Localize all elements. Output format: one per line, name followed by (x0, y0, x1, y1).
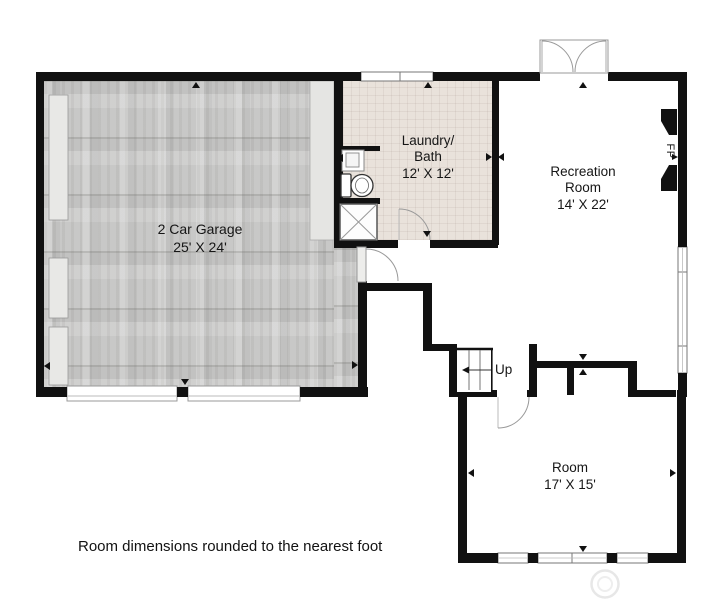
marker-garage-top (192, 82, 200, 88)
watermark-logo (592, 571, 619, 598)
room-dimensions: 17' X 15' (520, 476, 620, 493)
recreation-label: Recreation Room 14' X 22' (533, 164, 633, 213)
recreation-name-line2: Room (533, 180, 633, 196)
marker-room-left (468, 469, 474, 477)
marker-room-right (670, 469, 676, 477)
laundry-name-line2: Bath (378, 149, 478, 165)
sink-basin (346, 153, 359, 167)
laundry-name-line1: Laundry/ (378, 133, 478, 149)
marker-garage-bottom (181, 379, 189, 385)
laundry-window-2 (400, 72, 433, 81)
room-label: Room 17' X 15' (520, 459, 620, 493)
garage-left-shelf-3 (49, 327, 68, 385)
footer-note: Room dimensions rounded to the nearest f… (78, 538, 382, 555)
fireplace-lower-jamb (661, 165, 677, 191)
fireplace-label: FP (660, 140, 676, 162)
toilet-tank (341, 174, 351, 197)
garage-hall-door-swing (366, 249, 398, 281)
room-door-swing (498, 397, 529, 428)
garage-door-opening-2 (188, 386, 300, 401)
marker-landing-top (579, 354, 587, 360)
laundry-door-swing (399, 209, 430, 240)
garage-right-counter (310, 81, 334, 240)
marker-garage-right (352, 361, 358, 369)
laundry-window-1 (361, 72, 400, 81)
bath-fixtures (340, 150, 377, 240)
garage-left-shelf-1 (49, 95, 68, 220)
laundry-label: Laundry/ Bath 12' X 12' (378, 133, 478, 182)
garage-dimensions: 25' X 24' (110, 238, 290, 256)
marker-recreation-top (579, 82, 587, 88)
garage-left-shelf-2 (49, 258, 68, 318)
staircase (457, 348, 493, 392)
garage-name: 2 Car Garage (158, 221, 243, 237)
marker-room-bottom (579, 546, 587, 552)
recreation-name-line1: Recreation (533, 164, 633, 180)
marker-laundry-right-a (486, 153, 492, 161)
garage-hall-door-leaf (357, 247, 366, 282)
garage-label: 2 Car Garage 25' X 24' (110, 220, 290, 256)
marker-laundry-top (424, 82, 432, 88)
marker-landing-bottom (579, 369, 587, 375)
floor-plan: 2 Car Garage 25' X 24' Laundry/ Bath 12'… (0, 0, 720, 605)
recreation-dimensions: 14' X 22' (533, 197, 633, 213)
garage-door-opening-1 (67, 386, 177, 401)
laundry-dimensions: 12' X 12' (378, 166, 478, 182)
french-door (540, 40, 608, 73)
stairs-up-label: Up (495, 362, 512, 377)
fireplace-upper-jamb (661, 109, 677, 135)
floor-plan-linework (0, 0, 720, 605)
marker-garage-left (44, 362, 50, 370)
room-name: Room (520, 459, 620, 476)
